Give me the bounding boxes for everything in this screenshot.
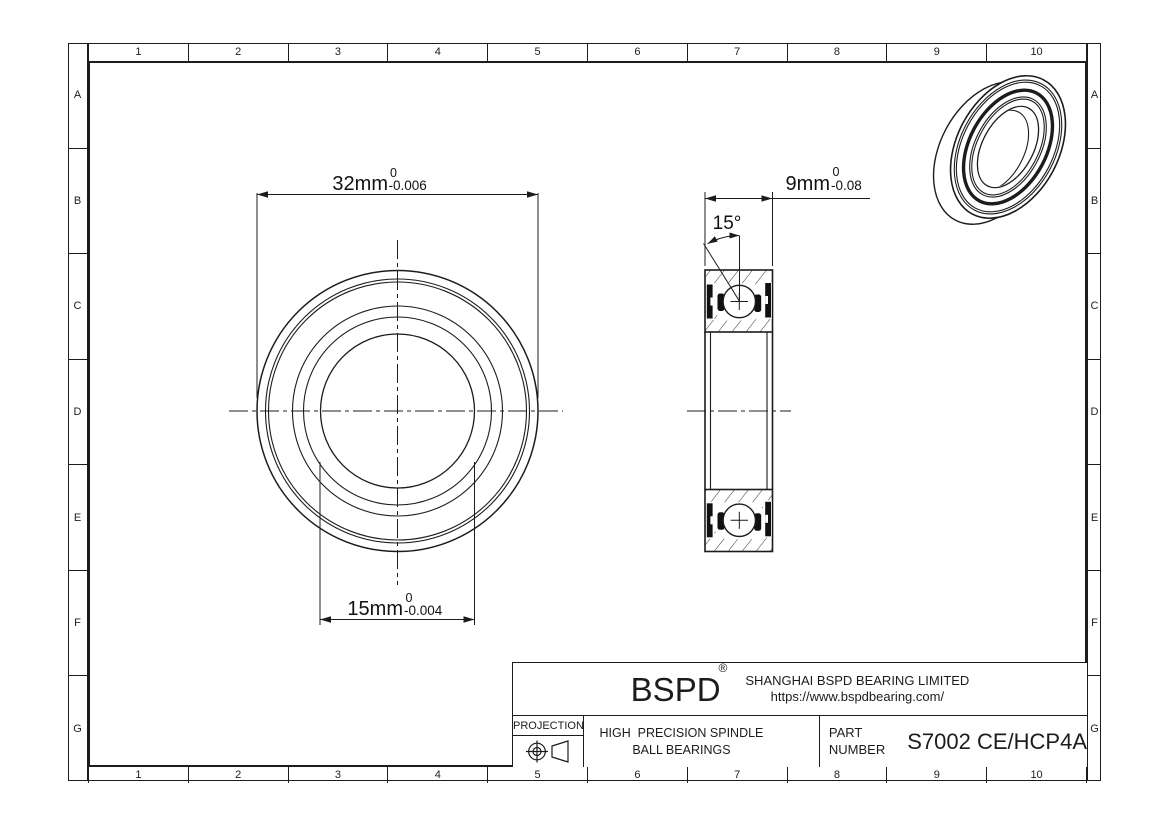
grid-ruler-bottom: 1 2 3 4 5 6 7 8 9 10 bbox=[88, 767, 1087, 783]
grid-row-label: E bbox=[68, 465, 87, 571]
projection-symbol bbox=[513, 736, 583, 767]
product-description-cell: HIGH PRECISION SPINDLE BALL BEARINGS bbox=[584, 716, 820, 767]
part-number-cell: PART NUMBER S7002 CE/HCP4A bbox=[820, 716, 1087, 767]
grid-col-label: 3 bbox=[289, 43, 389, 61]
grid-row-label: D bbox=[68, 360, 87, 466]
grid-col-label: 4 bbox=[388, 767, 488, 783]
product-line2: BALL BEARINGS bbox=[632, 742, 730, 759]
grid-row-label: E bbox=[1088, 465, 1101, 571]
title-block-detail-row: PROJECTION HIGH PRECISION SPINDLE bbox=[513, 716, 1087, 767]
projection-label: PROJECTION bbox=[513, 716, 583, 736]
first-angle-projection-icon bbox=[525, 738, 571, 765]
title-block-header-row: BSPD® SHANGHAI BSPD BEARING LIMITED http… bbox=[513, 663, 1087, 716]
grid-col-label: 8 bbox=[788, 43, 888, 61]
grid-row-label: D bbox=[1088, 360, 1101, 466]
grid-row-label: A bbox=[68, 43, 87, 149]
grid-row-label: G bbox=[68, 676, 87, 781]
grid-col-label: 9 bbox=[887, 43, 987, 61]
grid-col-label: 10 bbox=[987, 767, 1086, 783]
grid-col-label: 7 bbox=[688, 43, 788, 61]
grid-row-label: B bbox=[1088, 149, 1101, 255]
grid-col-label: 3 bbox=[289, 767, 389, 783]
grid-col-label: 8 bbox=[788, 767, 888, 783]
grid-row-label: C bbox=[1088, 254, 1101, 360]
grid-row-label: F bbox=[68, 571, 87, 677]
grid-ruler-left: A B C D E F G bbox=[68, 43, 88, 781]
registered-trademark-icon: ® bbox=[719, 661, 728, 675]
grid-col-label: 1 bbox=[89, 767, 189, 783]
grid-row-label: A bbox=[1088, 43, 1101, 149]
grid-col-label: 6 bbox=[588, 43, 688, 61]
grid-row-label: F bbox=[1088, 571, 1101, 677]
grid-ruler-right: A B C D E F G bbox=[1087, 43, 1101, 781]
grid-col-label: 4 bbox=[388, 43, 488, 61]
title-block: BSPD® SHANGHAI BSPD BEARING LIMITED http… bbox=[512, 662, 1087, 767]
grid-col-label: 7 bbox=[688, 767, 788, 783]
grid-ruler-top: 1 2 3 4 5 6 7 8 9 10 bbox=[88, 43, 1087, 61]
grid-col-label: 6 bbox=[588, 767, 688, 783]
grid-col-label: 5 bbox=[488, 43, 588, 61]
projection-cell: PROJECTION bbox=[513, 716, 584, 767]
company-name: SHANGHAI BSPD BEARING LIMITED bbox=[745, 673, 969, 689]
company-website: https://www.bspdbearing.com/ bbox=[745, 689, 969, 705]
grid-col-label: 9 bbox=[887, 767, 987, 783]
grid-col-label: 5 bbox=[488, 767, 588, 783]
part-number-value: S7002 CE/HCP4A bbox=[907, 729, 1087, 755]
grid-col-label: 10 bbox=[987, 43, 1086, 61]
grid-col-label: 2 bbox=[189, 43, 289, 61]
grid-row-label: B bbox=[68, 149, 87, 255]
grid-row-label: G bbox=[1088, 676, 1101, 781]
company-info: SHANGHAI BSPD BEARING LIMITED https://ww… bbox=[745, 673, 969, 704]
part-number-label: PART NUMBER bbox=[829, 725, 885, 759]
company-logo: BSPD® bbox=[631, 673, 730, 706]
product-line1: HIGH PRECISION SPINDLE bbox=[599, 725, 763, 742]
logo-text: BSPD bbox=[631, 671, 721, 708]
grid-col-label: 1 bbox=[89, 43, 189, 61]
grid-row-label: C bbox=[68, 254, 87, 360]
drawing-sheet: 32mm 0 -0.006 15mm 0 -0.004 bbox=[0, 0, 1170, 827]
grid-col-label: 2 bbox=[189, 767, 289, 783]
